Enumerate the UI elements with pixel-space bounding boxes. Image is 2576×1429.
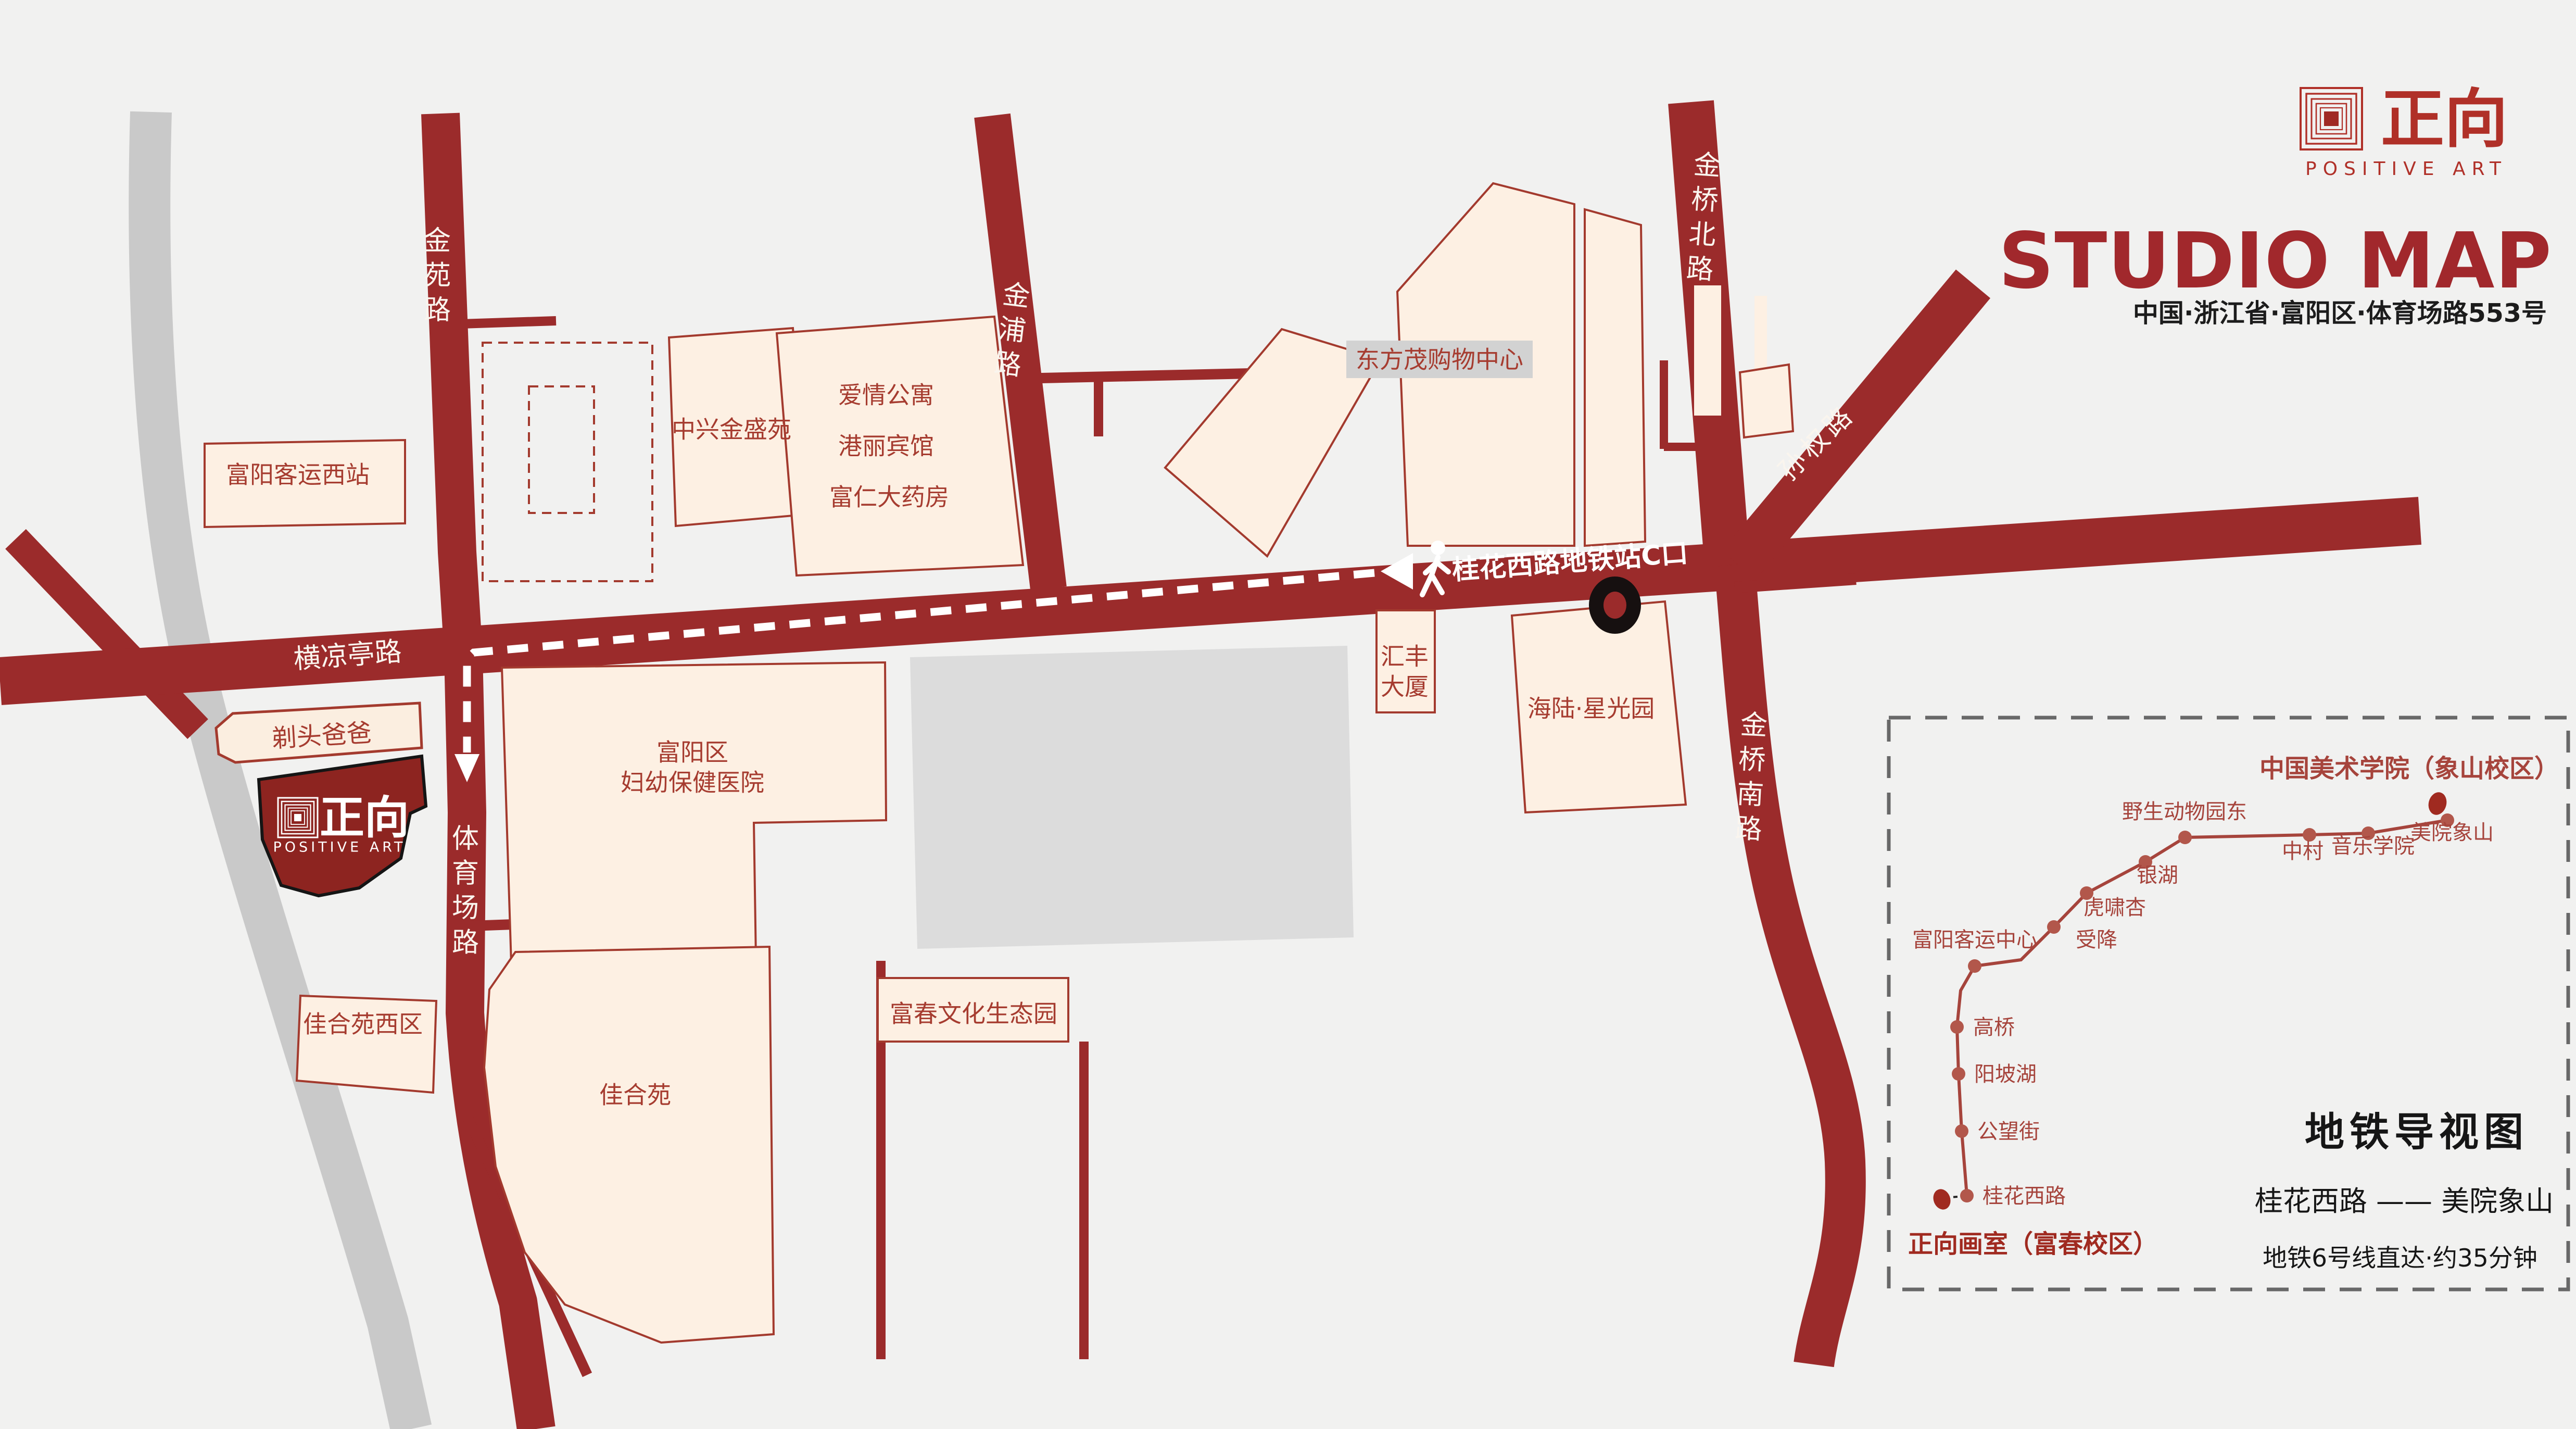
label-huifeng-1: 汇丰 xyxy=(1381,643,1429,671)
label-aiqing: 爱情公寓 xyxy=(838,381,934,409)
label-huifeng-2: 大厦 xyxy=(1381,673,1429,701)
studio-map-canvas: 富阳客运西站 中兴金盛苑 爱情公寓 港丽宾馆 富仁大药房 东方茂购物中心 汇丰 … xyxy=(0,0,2576,1429)
station-gaoqiao: 高桥 xyxy=(1973,1016,2015,1039)
page-title: STUDIO MAP xyxy=(1999,216,2552,306)
label-hospital-2: 妇幼保健医院 xyxy=(621,769,764,797)
studio-logo-cn: 正向 xyxy=(320,792,409,844)
station-yeshengdongwuyuandong: 野生动物园东 xyxy=(2122,800,2247,824)
station-guihuaxilu: 桂花西路 xyxy=(1982,1184,2066,1208)
station-yangpohu: 阳坡湖 xyxy=(1974,1062,2037,1086)
label-jiaheyuan-west: 佳合苑西区 xyxy=(303,1010,423,1038)
road-stub-jinyuan xyxy=(461,321,556,324)
stadium-block xyxy=(910,646,1354,949)
road-label-jinyuan: 金苑路 xyxy=(424,225,451,326)
label-furen: 富仁大药房 xyxy=(829,483,949,511)
brand-name-en: POSITIVE ART xyxy=(2305,158,2507,180)
label-jiaheyuan: 佳合苑 xyxy=(599,1081,671,1109)
station-zhongcun: 中村 xyxy=(2282,839,2324,863)
studio-address: 中国·浙江省·富阳区·体育场路553号 xyxy=(2133,298,2547,328)
metro-exit-dot-center xyxy=(1603,592,1626,619)
label-hospital-1: 富阳区 xyxy=(656,738,728,767)
label-gangli: 港丽宾馆 xyxy=(838,432,934,460)
bridge-notch-1 xyxy=(1694,285,1721,416)
studio-logo-en: POSITIVE ART xyxy=(273,839,406,856)
brand-name-cn: 正向 xyxy=(2381,82,2508,156)
inset-terminus-bottom-label: 正向画室（富春校区） xyxy=(1908,1230,2158,1259)
building-junction-block xyxy=(1740,365,1793,437)
label-fuchun-park: 富春文化生态园 xyxy=(890,1000,1057,1028)
label-zhongxing: 中兴金盛苑 xyxy=(672,416,791,444)
label-hailu: 海陆·星光园 xyxy=(1527,695,1655,723)
station-huxiaoxing: 虎啸杏 xyxy=(2083,896,2146,920)
station-yinyuexueyuan: 音乐学院 xyxy=(2331,834,2415,858)
inset-note: 地铁6号线直达·约35分钟 xyxy=(2263,1244,2537,1273)
station-yinhu: 银湖 xyxy=(2137,863,2178,887)
building-dongfangmao-east xyxy=(1585,209,1645,546)
station-shouxiang: 受降 xyxy=(2076,928,2117,952)
station-fuyangkeyunzhongxin: 富阳客运中心 xyxy=(1912,928,2037,952)
inset-title: 地铁导视图 xyxy=(2305,1109,2529,1155)
label-dongfangmao: 东方茂购物中心 xyxy=(1356,346,1523,374)
inset-terminus-top-label: 中国美术学院（象山校区） xyxy=(2259,754,2559,783)
station-meiyuanxiangshan: 美院象山 xyxy=(2410,821,2494,845)
station-gongwangjie: 公望街 xyxy=(1977,1120,2040,1144)
label-titou-baba: 剃头爸爸 xyxy=(271,718,372,754)
inset-route-summary: 桂花西路 —— 美院象山 xyxy=(2255,1185,2554,1218)
label-bus-station-west: 富阳客运西站 xyxy=(226,461,370,489)
